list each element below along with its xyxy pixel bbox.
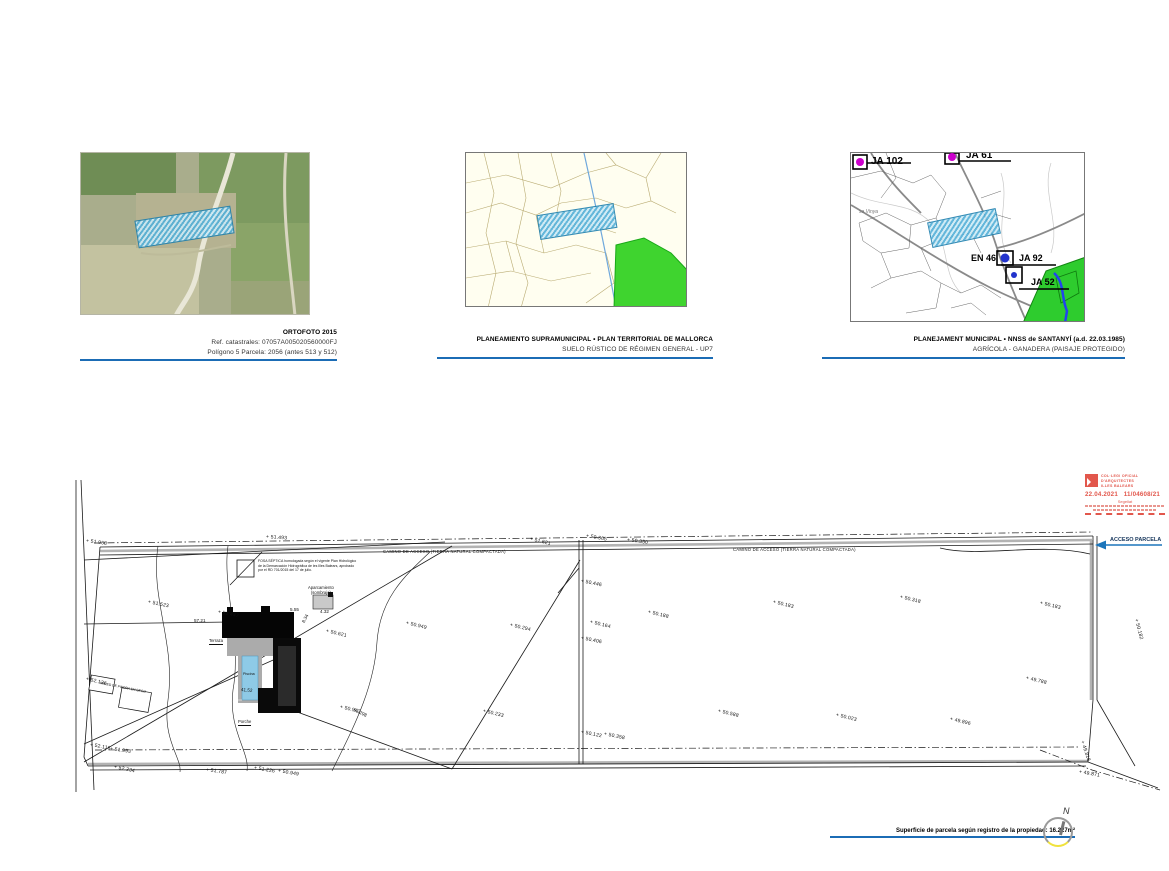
caption-ref: Ref. catastrales: 07057A005020560000FJ	[80, 338, 337, 348]
pool	[242, 656, 258, 700]
caption-title: PLANEJAMENT MUNICIPAL • NNSS de SANTANYÍ…	[822, 335, 1125, 345]
plan-sheet: ORTOFOTO 2015 Ref. catastrales: 07057A00…	[0, 0, 1169, 871]
caption-title: PLANEAMIENTO SUPRAMUNICIPAL • PLAN TERRI…	[437, 335, 713, 345]
porche-label: Porche	[238, 719, 251, 726]
zone-ja92: JA 92	[1019, 253, 1043, 263]
map-plan-territorial	[465, 152, 687, 307]
caption-title: ORTOFOTO 2015	[80, 328, 337, 338]
terraza-label: Terraza	[209, 638, 223, 645]
site-plan-drawing	[70, 470, 1169, 871]
dimension-label: 4.32	[320, 609, 329, 614]
map-ortofoto	[80, 152, 310, 315]
caption-nnss: PLANEJAMENT MUNICIPAL • NNSS de SANTANYÍ…	[822, 335, 1125, 359]
dimension-label: 41.52	[241, 687, 253, 693]
caption-parcel: Polígono 5 Parcela: 2056 (antes 513 y 51…	[80, 348, 337, 358]
camino-label-1: CAMINO DE ACCESO (TIERRA NATURAL COMPACT…	[383, 549, 506, 554]
zone-ja52: JA 52	[1031, 277, 1055, 287]
caption-subtitle: AGRÍCOLA - GANADERA (PAISAJE PROTEGIDO)	[822, 345, 1125, 355]
porch	[258, 688, 274, 713]
terrace	[227, 638, 277, 656]
map-nnss: JA 102 JA 61 EN 46 JA 92 JA 52 sa Vinya	[850, 152, 1085, 322]
caption-ortofoto: ORTOFOTO 2015 Ref. catastrales: 07057A00…	[80, 328, 337, 361]
zone-en46: EN 46	[971, 253, 996, 263]
dimension-label: 57.21	[194, 618, 206, 623]
green-zone	[614, 238, 687, 307]
aparcamiento-label: Aparcamiento (sombrajo)	[308, 585, 334, 595]
caption-plan-territorial: PLANEAMIENTO SUPRAMUNICIPAL • PLAN TERRI…	[437, 335, 713, 359]
acceso-parcela-label: ACCESO PARCELA	[1110, 537, 1161, 543]
aparcamiento-line2: (sombrajo)	[308, 590, 334, 595]
dimension-label: 5.55	[290, 607, 299, 612]
zone-ja102: JA 102	[871, 156, 903, 167]
camino-label-2: CAMINO DE ACCESO (TIERRA NATURAL COMPACT…	[733, 547, 856, 552]
compass-needle	[1059, 821, 1065, 835]
carport	[313, 595, 333, 609]
caption-subtitle: SUELO RÚSTICO DE RÉGIMEN GENERAL - UP7	[437, 345, 713, 355]
piscina-label: Piscina	[243, 672, 255, 676]
area-note: Superficie de parcela según registro de …	[830, 828, 1075, 838]
north-compass-icon	[1043, 817, 1073, 847]
zone-ja61: JA 61	[966, 152, 992, 161]
north-label: N	[1063, 806, 1070, 816]
fosa-septica-note: FOSA SÉPTICA homologada según el vigente…	[258, 559, 358, 573]
place-sa-vinya: sa Vinya	[859, 209, 878, 215]
